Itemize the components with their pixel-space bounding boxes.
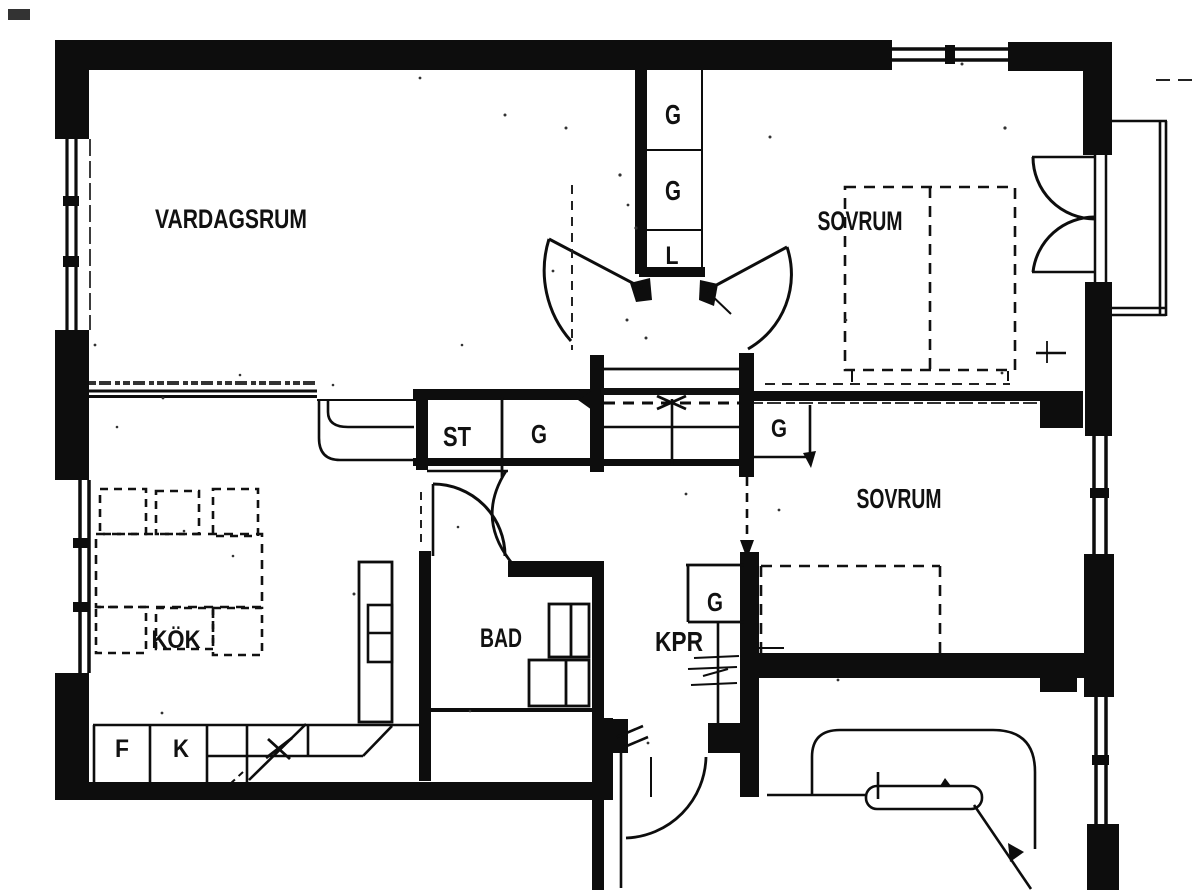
- svg-text:SOVRUM: SOVRUM: [857, 483, 942, 514]
- svg-text:L: L: [666, 242, 679, 270]
- svg-text:F: F: [115, 735, 129, 763]
- svg-text:VARDAGSRUM: VARDAGSRUM: [155, 204, 307, 234]
- svg-text:G: G: [531, 419, 547, 449]
- svg-text:BAD: BAD: [480, 623, 522, 653]
- svg-text:G: G: [665, 99, 681, 130]
- svg-text:G: G: [665, 175, 681, 206]
- svg-text:K: K: [173, 735, 189, 763]
- svg-text:KPR: KPR: [655, 626, 703, 657]
- svg-text:G: G: [707, 587, 723, 617]
- svg-text:SOVRUM: SOVRUM: [818, 206, 903, 236]
- svg-text:KÖK: KÖK: [152, 625, 201, 654]
- svg-text:G: G: [771, 415, 787, 443]
- svg-text:ST: ST: [443, 421, 471, 452]
